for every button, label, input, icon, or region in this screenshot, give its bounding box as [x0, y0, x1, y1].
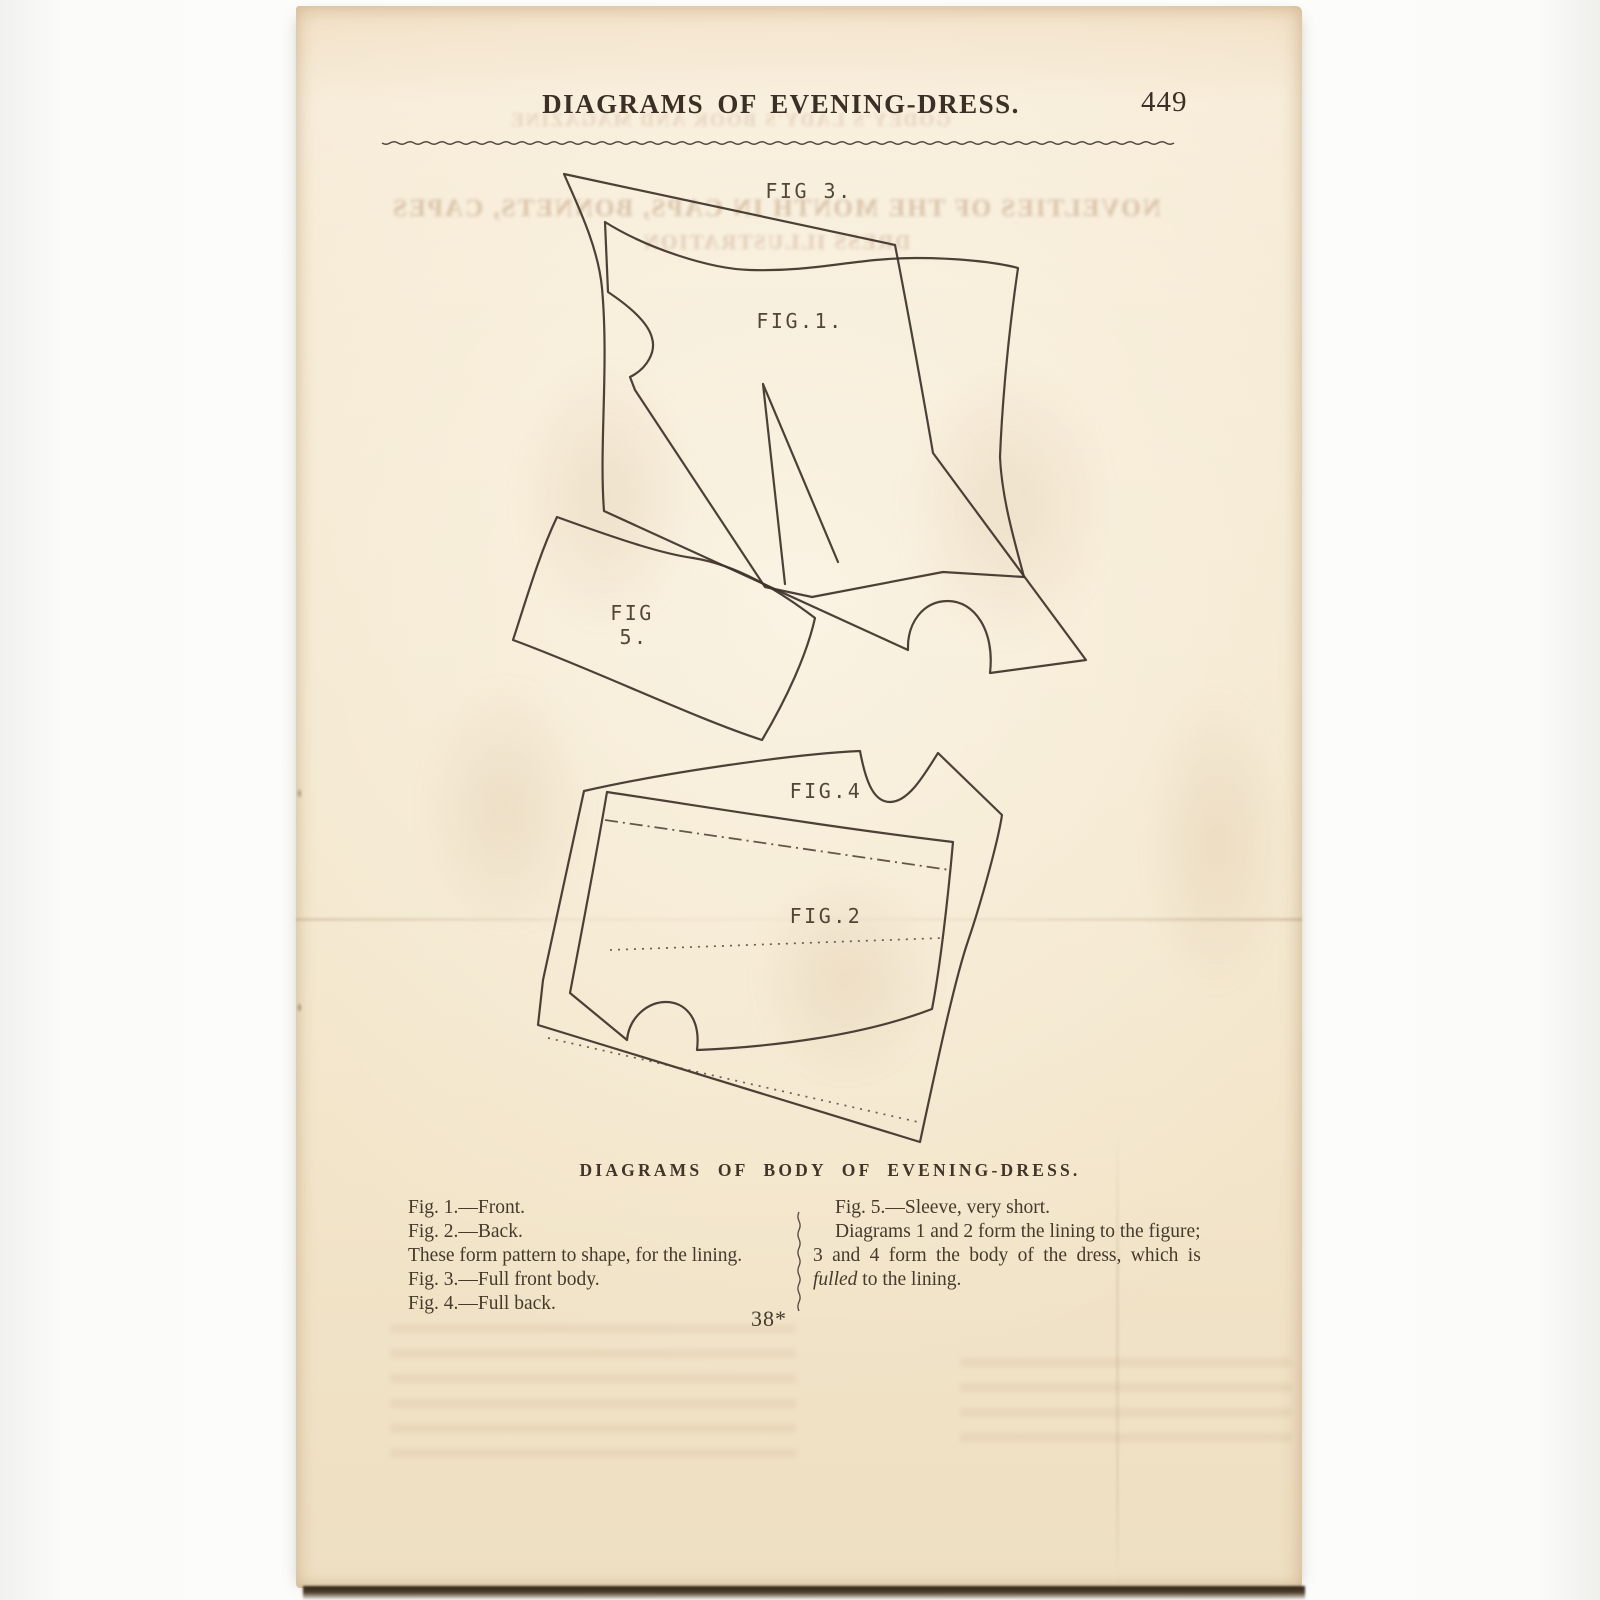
- footnote-line: 3 and 4 form the body of the dress, whic…: [813, 1244, 1243, 1268]
- page-bottom-shadow: [303, 1586, 1305, 1600]
- signature-mark: 38*: [734, 1306, 804, 1332]
- fig1-dart: [763, 384, 838, 584]
- scan-backdrop: GODEY'S LADY'S BOOK AND MAGAZINE NOVELTI…: [0, 0, 1600, 1600]
- footer-left-column: Fig. 1.—Front. Fig. 2.—Back. These form …: [408, 1196, 810, 1316]
- header-rule-squiggle: [382, 142, 1174, 144]
- footnote-line: Fig. 5.—Sleeve, very short.: [813, 1196, 1243, 1220]
- footnote-line: Fig. 3.—Full front body.: [408, 1268, 810, 1292]
- fig2-mid-seam-dotted: [610, 938, 943, 950]
- fig3-label: FIG 3.: [765, 179, 852, 203]
- book-page: GODEY'S LADY'S BOOK AND MAGAZINE NOVELTI…: [296, 6, 1302, 1588]
- fig3-outline: [564, 174, 1086, 673]
- fig2-label: FIG.2: [790, 904, 863, 928]
- footnote-line-rest: to the lining.: [857, 1269, 961, 1290]
- footnote-line: These form pattern to shape, for the lin…: [408, 1244, 810, 1268]
- footnote-line: Fig. 2.—Back.: [408, 1220, 810, 1244]
- footnote-line: Diagrams 1 and 2 form the lining to the …: [813, 1220, 1243, 1244]
- fig2-top-seam-dashed: [605, 820, 950, 870]
- footnote-italic-word: fulled: [813, 1269, 857, 1290]
- fig2-outline: [570, 792, 953, 1050]
- fig5-label-line2: 5.: [619, 625, 648, 649]
- pattern-diagram-svg: FIG 3. FIG.1. FIG 5. FIG.4 FIG.2: [296, 6, 1302, 1594]
- fig4-bottom-seam-dotted: [548, 1038, 918, 1122]
- fig1-label: FIG.1.: [756, 309, 843, 333]
- footnote-line: Fig. 1.—Front.: [408, 1196, 810, 1220]
- footer-right-column: Fig. 5.—Sleeve, very short. Diagrams 1 a…: [813, 1196, 1243, 1292]
- footnote-line: fulled to the lining.: [813, 1268, 1243, 1292]
- figure-caption: DIAGRAMS OF BODY OF EVENING-DRESS.: [340, 1160, 1320, 1181]
- fig4-outline: [538, 751, 1002, 1142]
- fig5-label: FIG: [610, 601, 654, 625]
- fig5-outline: [513, 517, 815, 740]
- fig4-label: FIG.4: [790, 779, 863, 803]
